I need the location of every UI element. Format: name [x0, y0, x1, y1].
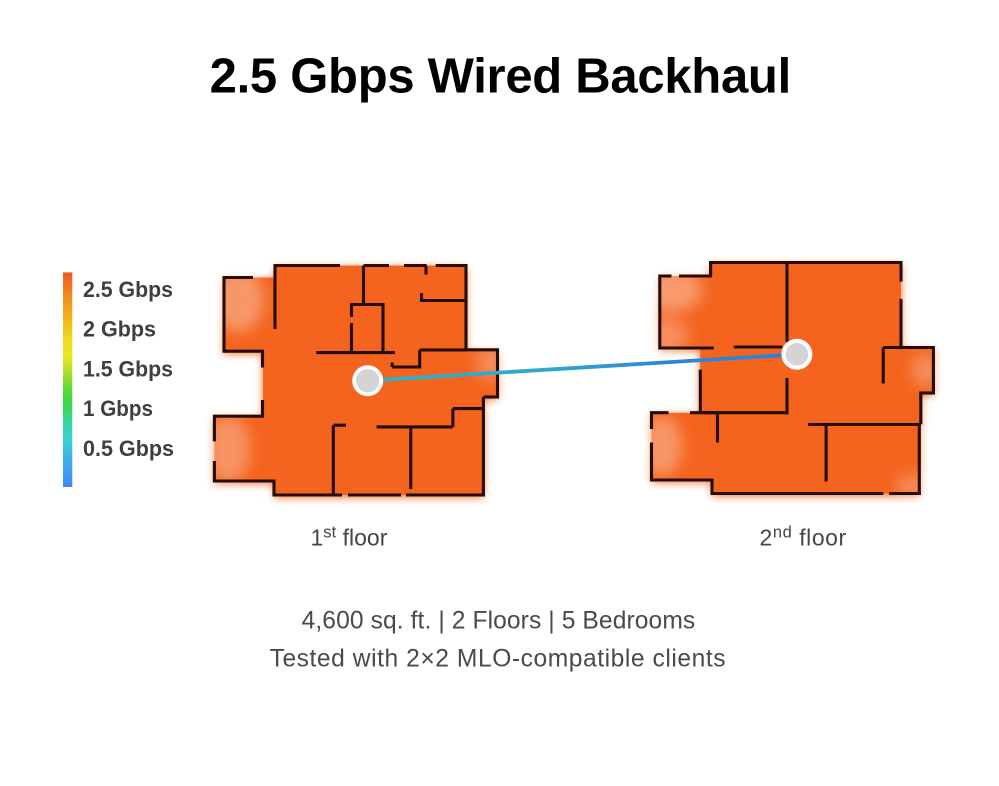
svg-text:2.5 Gbps: 2.5 Gbps [83, 277, 173, 302]
svg-text:2 Gbps: 2 Gbps [83, 317, 156, 342]
svg-text:4,600 sq. ft. | 2 Floors | 5 B: 4,600 sq. ft. | 2 Floors | 5 Bedrooms [302, 608, 696, 635]
svg-text:2.5 Gbps Wired Backhaul: 2.5 Gbps Wired Backhaul [210, 49, 792, 103]
svg-text:1 Gbps: 1 Gbps [83, 396, 153, 421]
svg-text:1.5 Gbps: 1.5 Gbps [83, 356, 173, 381]
svg-text:1st floor: 1st floor [311, 524, 388, 551]
svg-text:2nd floor: 2nd floor [760, 524, 847, 551]
svg-text:Tested with 2×2 MLO-compatible: Tested with 2×2 MLO-compatible clients [270, 646, 726, 673]
svg-text:0.5 Gbps: 0.5 Gbps [83, 436, 174, 461]
